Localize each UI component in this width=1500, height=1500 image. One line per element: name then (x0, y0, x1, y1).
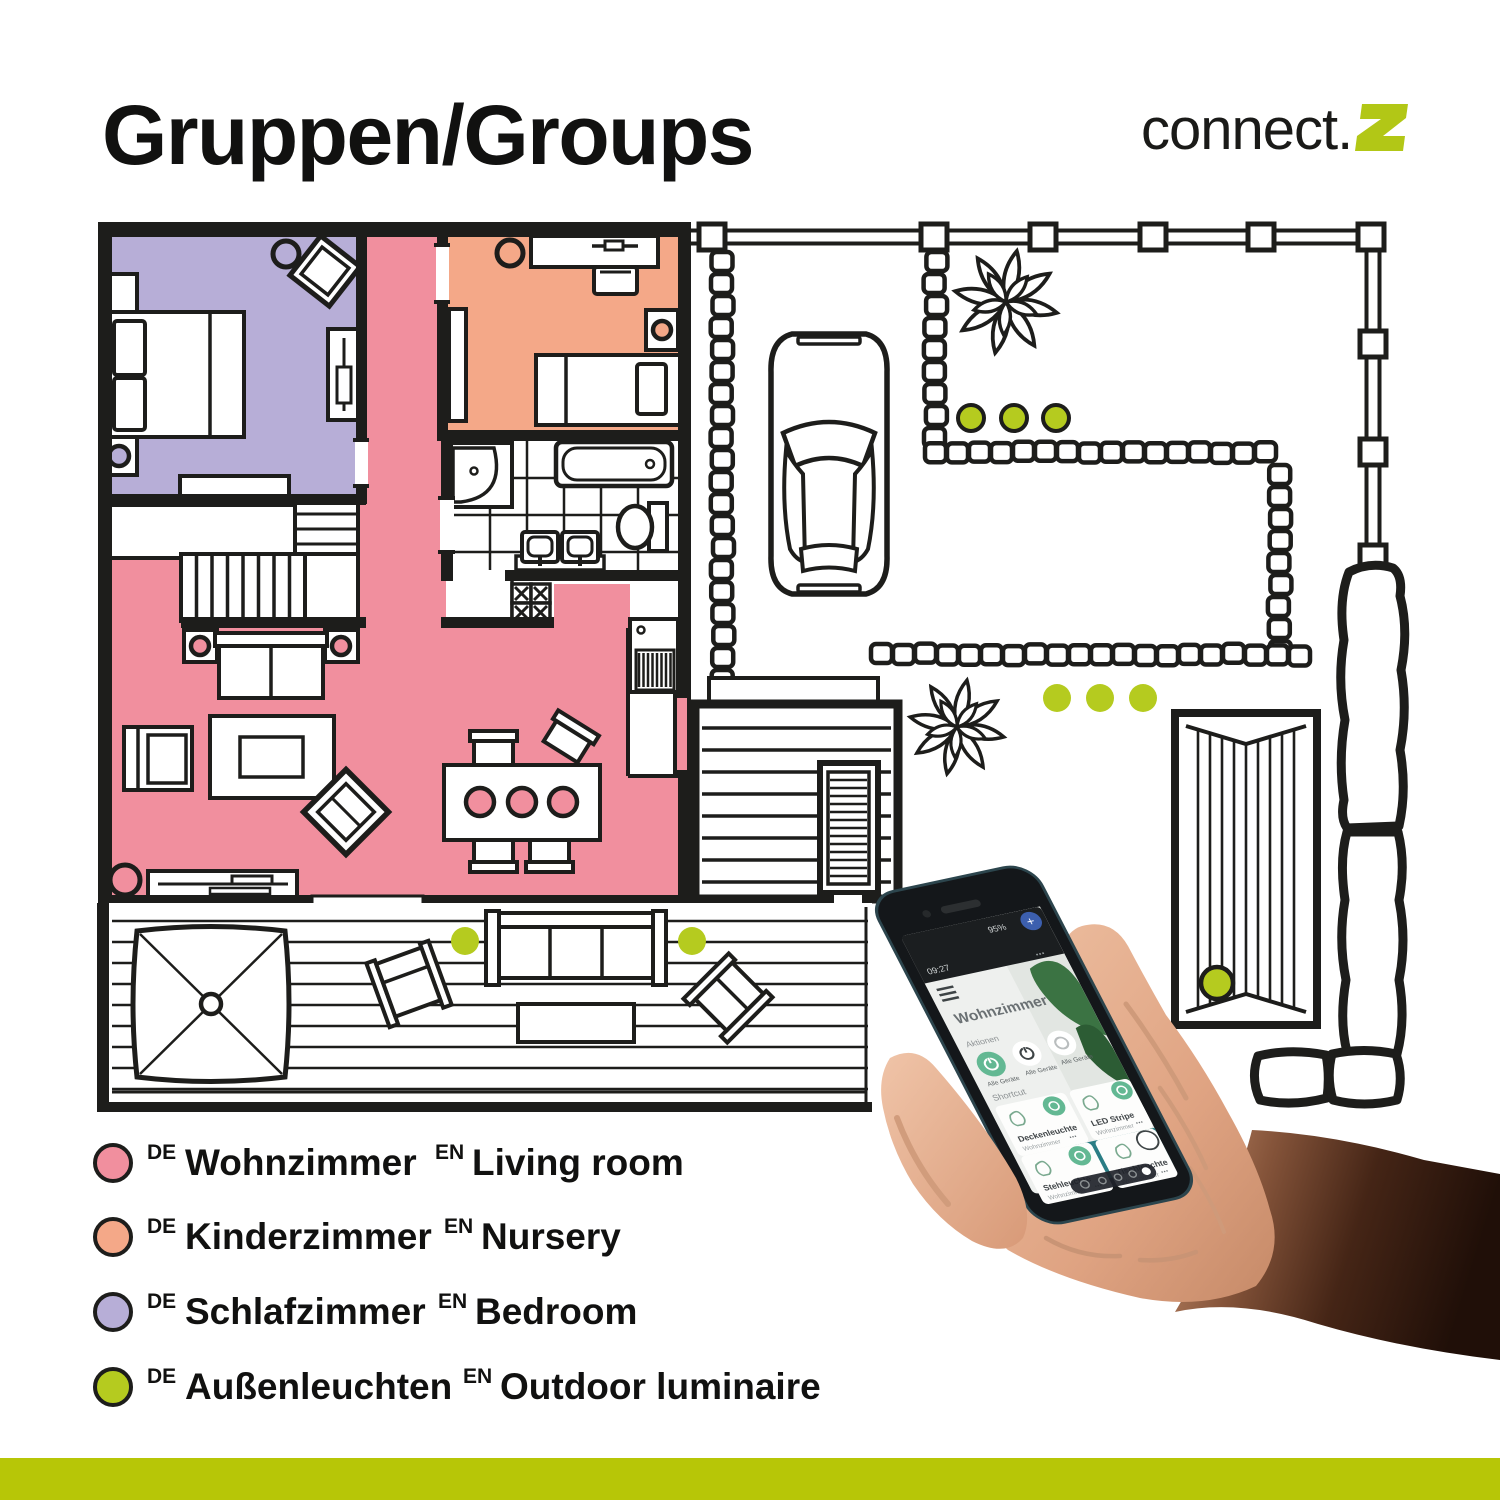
svg-text:Außenleuchten: Außenleuchten (185, 1366, 452, 1407)
svg-text:Gruppen/Groups: Gruppen/Groups (102, 88, 753, 182)
svg-text:Schlafzimmer: Schlafzimmer (185, 1291, 426, 1332)
svg-text:DE: DE (147, 1365, 176, 1388)
svg-text:Living room: Living room (472, 1142, 684, 1183)
svg-text:Kinderzimmer: Kinderzimmer (185, 1216, 432, 1257)
svg-text:Outdoor luminaire: Outdoor luminaire (500, 1366, 821, 1407)
svg-text:Bedroom: Bedroom (475, 1291, 637, 1332)
svg-text:EN: EN (438, 1290, 467, 1313)
svg-text:DE: DE (147, 1215, 176, 1238)
svg-text:Nursery: Nursery (481, 1216, 621, 1257)
svg-text:Wohnzimmer: Wohnzimmer (185, 1142, 417, 1183)
svg-text:DE: DE (147, 1290, 176, 1313)
svg-text:EN: EN (435, 1141, 464, 1164)
svg-text:EN: EN (463, 1365, 492, 1388)
svg-text:DE: DE (147, 1141, 176, 1164)
svg-text:connect.: connect. (1141, 97, 1352, 162)
svg-text:EN: EN (444, 1215, 473, 1238)
